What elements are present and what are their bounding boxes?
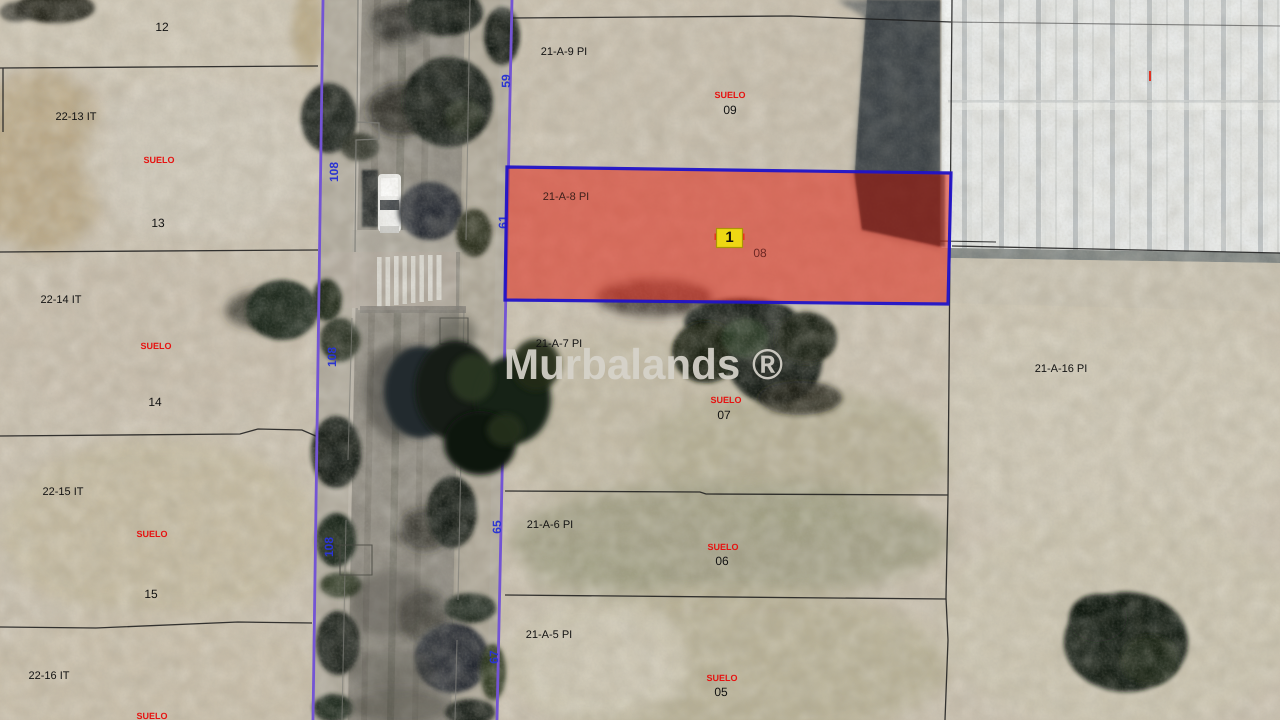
svg-text:67: 67 [487,650,501,664]
svg-text:21-A-5 PI: 21-A-5 PI [526,629,572,641]
svg-text:SUELO: SUELO [706,673,737,683]
svg-text:12: 12 [155,20,169,34]
svg-text:21-A-8 PI: 21-A-8 PI [543,191,589,203]
svg-text:21-A-9 PI: 21-A-9 PI [541,46,587,58]
svg-text:SUELO: SUELO [140,341,171,351]
svg-text:108: 108 [325,347,339,367]
svg-text:08: 08 [753,246,767,260]
svg-text:108: 108 [322,537,336,557]
svg-text:65: 65 [490,520,504,534]
svg-text:SUELO: SUELO [136,711,167,720]
svg-text:SUELO: SUELO [710,395,741,405]
svg-text:Murbalands ®: Murbalands ® [504,341,783,389]
svg-text:21-A-6 PI: 21-A-6 PI [527,519,573,531]
svg-text:07: 07 [717,408,731,422]
svg-text:09: 09 [723,103,737,117]
svg-text:13: 13 [151,216,165,230]
svg-text:22-16 IT: 22-16 IT [29,670,70,682]
svg-text:1: 1 [725,229,733,246]
svg-text:06: 06 [715,554,729,568]
svg-text:SUELO: SUELO [714,90,745,100]
svg-text:59: 59 [499,74,513,88]
svg-text:SUELO: SUELO [143,155,174,165]
svg-text:SUELO: SUELO [707,542,738,552]
svg-text:21-A-16 PI: 21-A-16 PI [1035,363,1088,375]
svg-text:15: 15 [144,587,158,601]
svg-text:108: 108 [327,162,341,182]
svg-text:22-14 IT: 22-14 IT [41,294,82,306]
svg-text:22-15 IT: 22-15 IT [43,486,84,498]
svg-text:SUELO: SUELO [136,529,167,539]
svg-text:05: 05 [714,685,728,699]
svg-text:22-13 IT: 22-13 IT [56,111,97,123]
svg-text:14: 14 [148,395,162,409]
